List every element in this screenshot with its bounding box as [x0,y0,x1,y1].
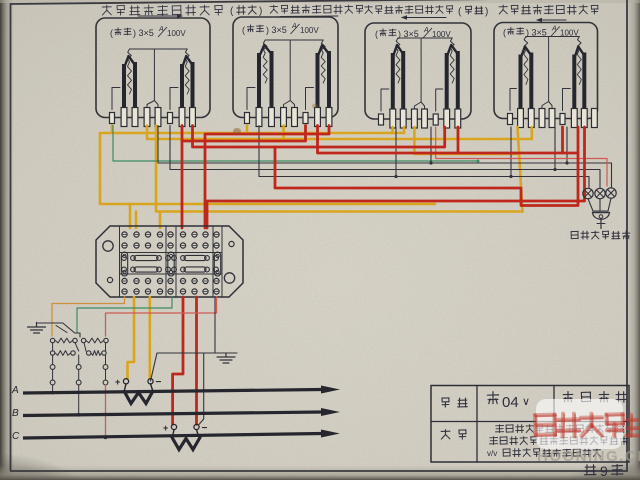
svg-text:+: + [115,377,120,387]
svg-text:(: ( [110,28,113,38]
svg-text:(: ( [503,28,506,38]
svg-text:v/v: v/v [487,449,497,458]
svg-text:) 3×5: ) 3×5 [266,25,287,35]
svg-text:−: − [202,423,208,434]
svg-text:−: − [156,377,162,388]
svg-text:+: + [163,423,168,433]
svg-text:100V: 100V [300,26,319,35]
svg-text:(: ( [242,25,245,35]
svg-text:): ) [259,6,262,17]
svg-text:∨: ∨ [522,396,530,408]
svg-text:04: 04 [502,394,519,411]
svg-text:): ) [485,7,488,18]
svg-text:9: 9 [600,463,608,479]
svg-text:(: ( [375,29,378,39]
svg-text:C: C [12,431,20,442]
svg-text:A: A [551,26,557,33]
svg-text:B: B [12,408,19,419]
svg-text:A: A [11,385,19,396]
svg-text:100V: 100V [167,29,186,38]
svg-text:) 3×5: ) 3×5 [133,28,154,38]
svg-text:A: A [291,23,297,30]
svg-text:HOONING.CN: HOONING.CN [537,448,640,465]
